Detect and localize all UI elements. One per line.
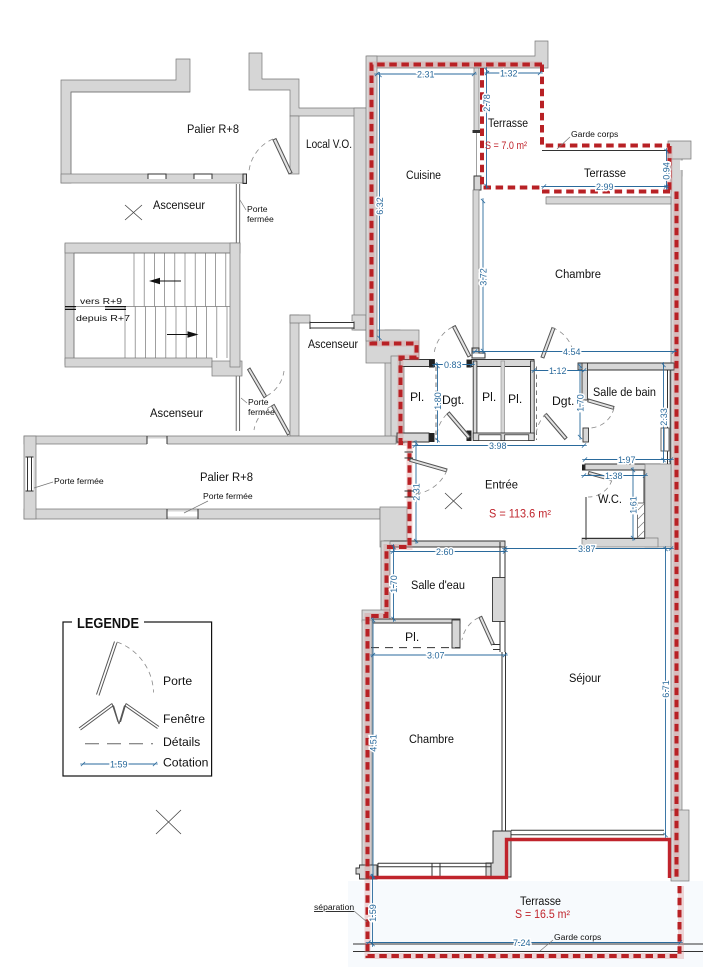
svg-text:2.60: 2.60 [436,547,454,557]
svg-text:Cotation: Cotation [163,756,208,770]
svg-text:1.70: 1.70 [389,575,399,593]
svg-text:Terrasse: Terrasse [520,894,561,908]
svg-text:Terrasse: Terrasse [488,116,528,130]
svg-text:2.31: 2.31 [412,483,422,501]
svg-text:1.59: 1.59 [368,904,378,922]
svg-text:Pl.: Pl. [410,390,424,404]
svg-text:vers R+9: vers R+9 [80,296,122,306]
svg-text:3.87: 3.87 [578,544,596,554]
svg-text:Chambre: Chambre [555,267,601,281]
svg-text:W.C.: W.C. [598,492,622,506]
svg-text:Garde corps: Garde corps [571,129,618,139]
svg-text:Ascenseur: Ascenseur [308,337,358,351]
svg-text:Détails: Détails [163,735,200,749]
svg-text:6.71: 6.71 [661,680,671,698]
svg-text:Dgt.: Dgt. [442,393,464,407]
svg-text:S = 16.5 m²: S = 16.5 m² [515,909,570,921]
svg-text:1.12: 1.12 [549,366,567,376]
svg-text:2.99: 2.99 [596,182,614,192]
svg-text:Ascenseur: Ascenseur [153,198,205,212]
svg-text:Palier R+8: Palier R+8 [187,122,239,136]
svg-text:1.59: 1.59 [110,760,128,770]
svg-text:Pl.: Pl. [508,392,522,406]
svg-text:fermée: fermée [247,214,274,224]
svg-text:Fenêtre: Fenêtre [163,712,205,726]
svg-text:LEGENDE: LEGENDE [77,616,139,632]
svg-text:Local V.O.: Local V.O. [306,137,352,151]
svg-text:1.97: 1.97 [618,455,636,465]
svg-text:Séjour: Séjour [569,671,601,685]
svg-text:Cuisine: Cuisine [406,168,441,182]
svg-text:Pl.: Pl. [405,630,419,644]
svg-text:1.61: 1.61 [629,496,639,514]
svg-text:Porte: Porte [247,204,268,214]
svg-text:4.54: 4.54 [563,347,581,357]
svg-text:Porte fermée: Porte fermée [54,476,104,486]
svg-text:séparation: séparation [314,902,354,912]
svg-text:6.32: 6.32 [375,197,385,215]
svg-text:Chambre: Chambre [409,732,454,746]
svg-text:3.72: 3.72 [479,268,489,286]
svg-text:0.83: 0.83 [444,360,462,370]
svg-text:2.78: 2.78 [482,94,492,112]
svg-text:Garde corps: Garde corps [554,932,601,942]
svg-text:1.70: 1.70 [576,394,586,412]
svg-text:Terrasse: Terrasse [584,166,626,180]
svg-text:Pl.: Pl. [482,390,496,404]
svg-text:2.31: 2.31 [417,70,435,80]
svg-text:1.32: 1.32 [500,69,518,79]
svg-text:0.94: 0.94 [662,162,672,180]
svg-text:1.38: 1.38 [605,471,623,481]
svg-text:Dgt.: Dgt. [552,394,574,408]
svg-text:Porte: Porte [248,397,269,407]
svg-text:fermée: fermée [248,407,275,417]
svg-text:Palier R+8: Palier R+8 [200,470,253,484]
svg-text:Entrée: Entrée [485,478,518,492]
svg-text:4.51: 4.51 [369,734,379,752]
svg-text:S = 113.6 m²: S = 113.6 m² [489,509,551,521]
svg-text:Ascenseur: Ascenseur [150,406,203,420]
svg-text:S = 7.0 m²: S = 7.0 m² [485,140,527,152]
svg-text:2.33: 2.33 [659,408,669,426]
svg-text:Salle de bain: Salle de bain [593,385,656,399]
svg-text:Salle d'eau: Salle d'eau [411,578,465,592]
svg-text:Porte fermée: Porte fermée [203,491,253,501]
svg-text:3.98: 3.98 [489,441,507,451]
svg-text:Porte: Porte [163,674,192,688]
svg-text:7.24: 7.24 [513,938,531,948]
svg-text:3.07: 3.07 [427,651,445,661]
svg-text:depuis R+7: depuis R+7 [76,313,130,323]
